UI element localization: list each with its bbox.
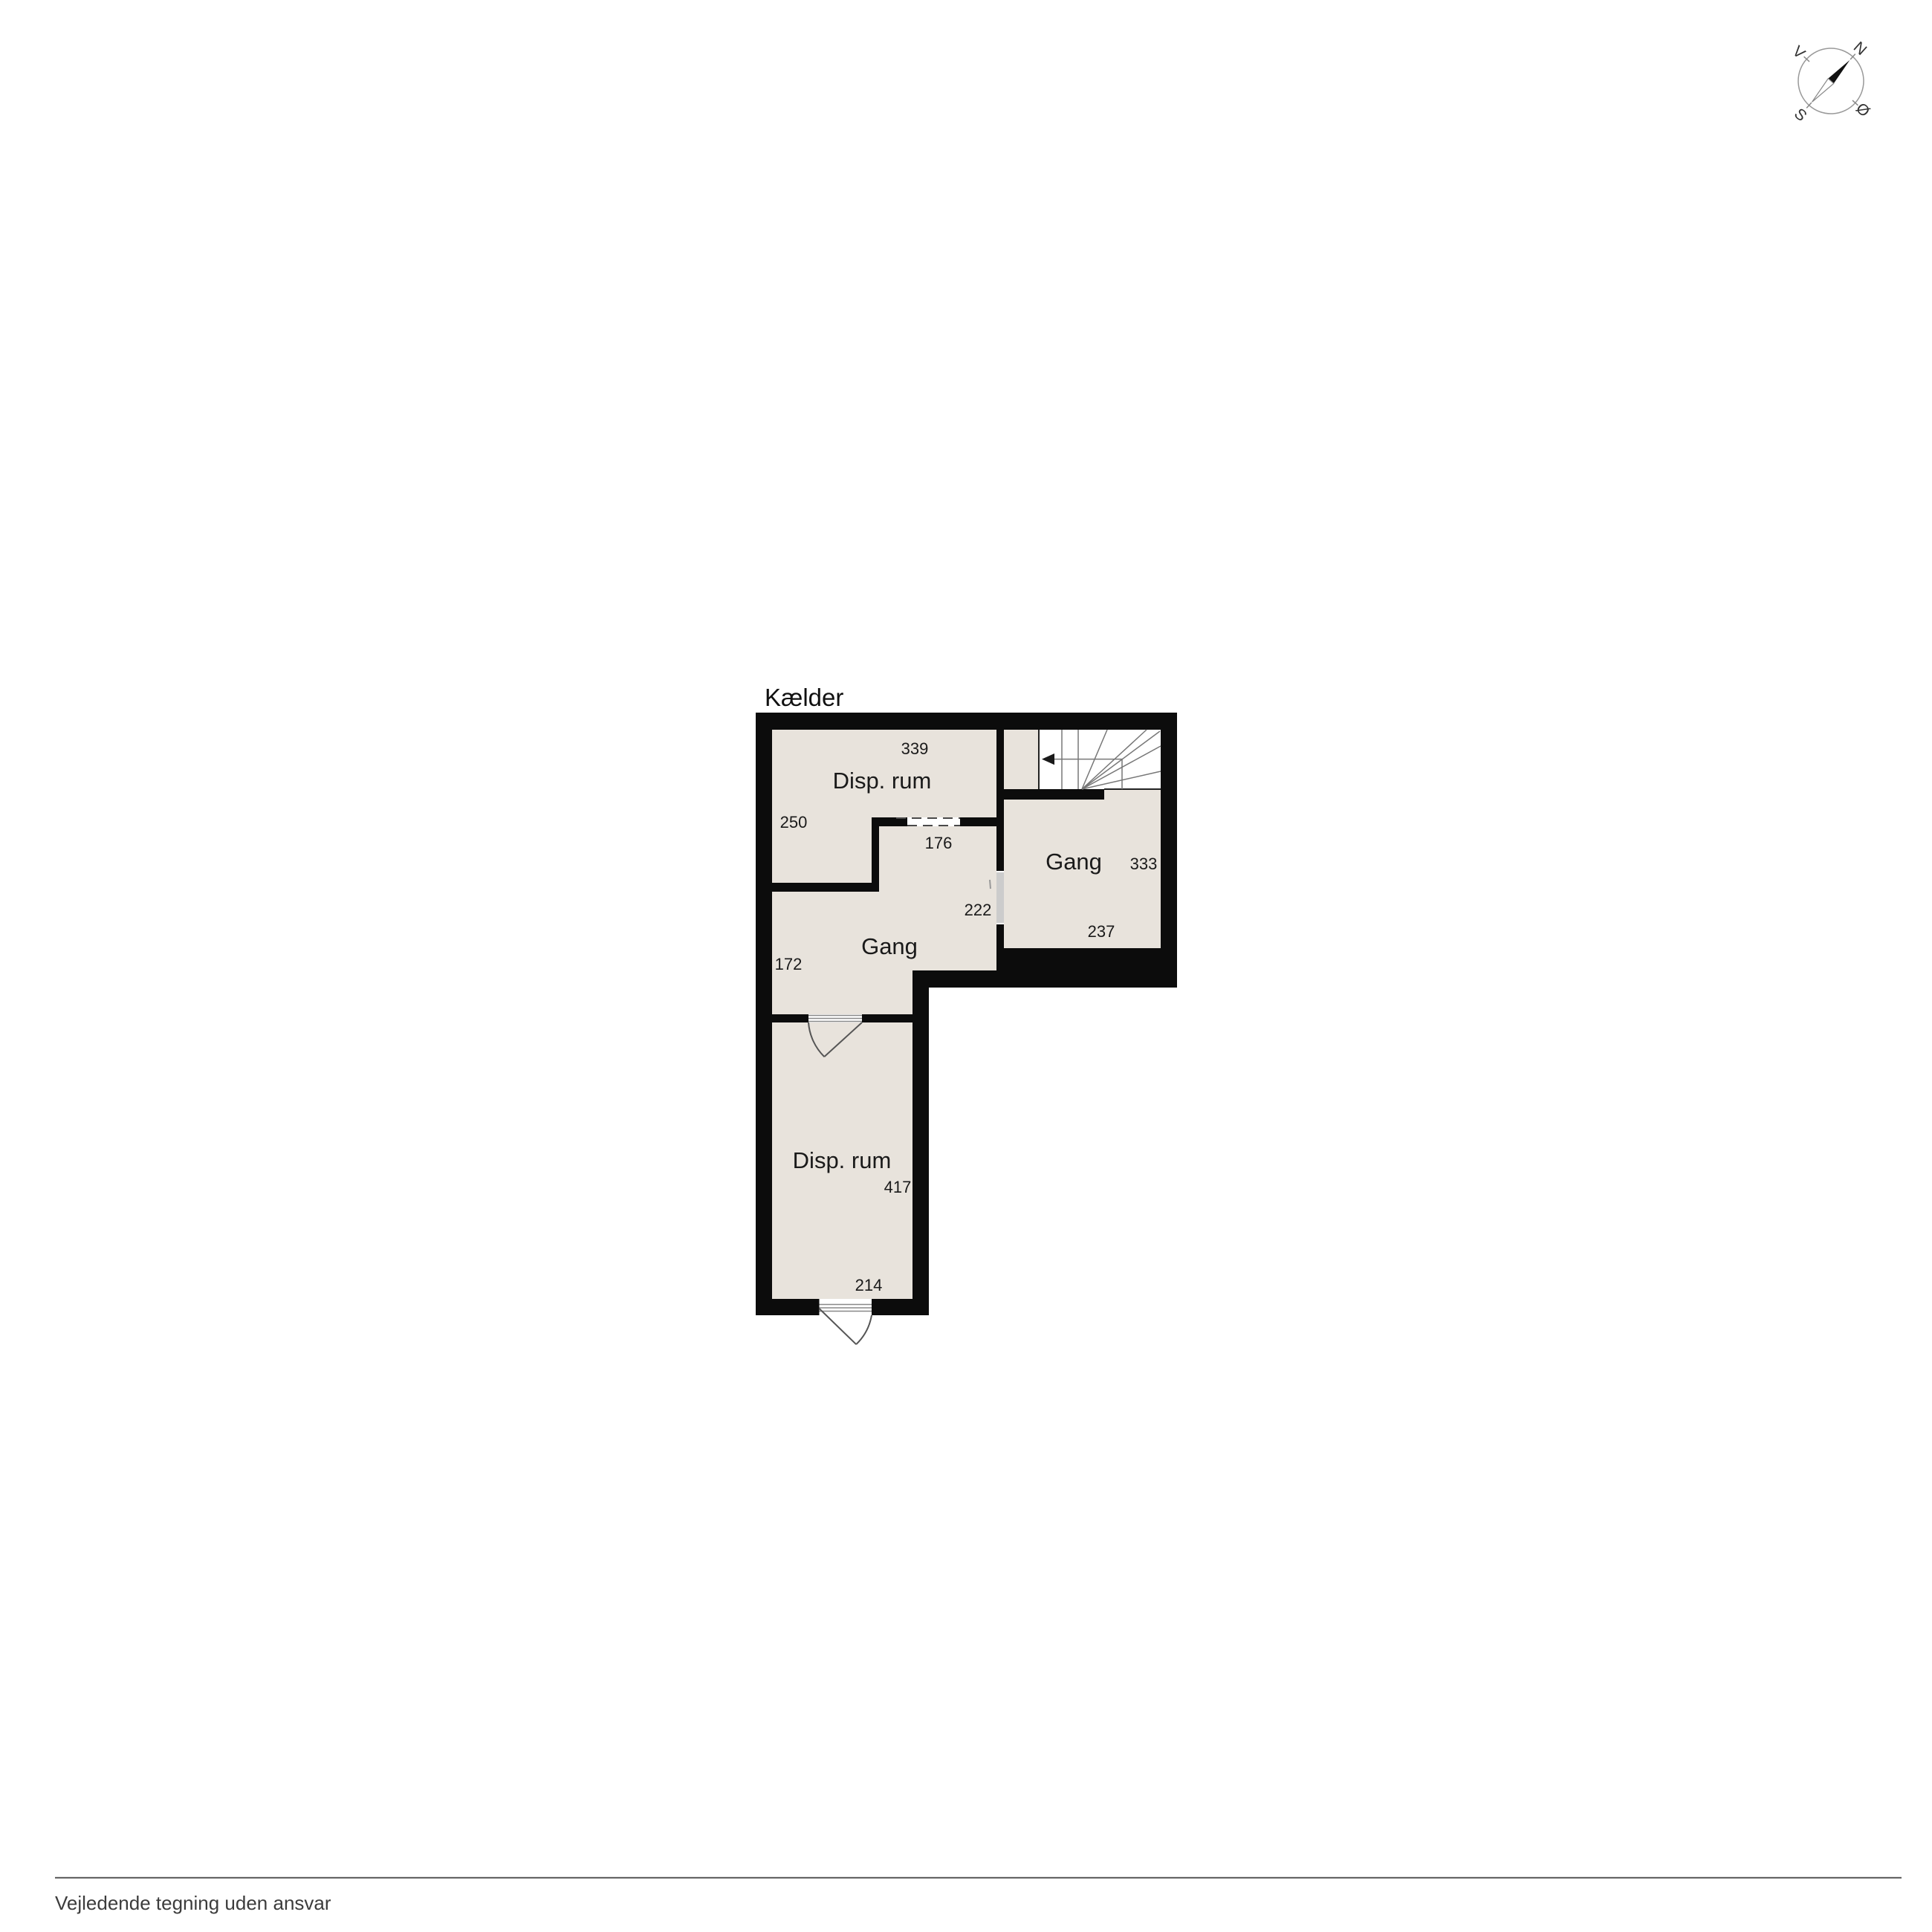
svg-text:172: 172: [775, 955, 803, 973]
svg-text:Gang: Gang: [861, 933, 918, 959]
svg-text:333: 333: [1130, 855, 1158, 873]
svg-text:250: 250: [780, 813, 808, 832]
svg-text:Disp. rum: Disp. rum: [793, 1147, 892, 1173]
svg-text:417: 417: [884, 1178, 912, 1196]
svg-text:176: 176: [925, 834, 953, 852]
svg-text:Vejledende tegning uden ansvar: Vejledende tegning uden ansvar: [55, 1892, 331, 1914]
svg-text:214: 214: [855, 1276, 883, 1294]
svg-text:Gang: Gang: [1046, 849, 1102, 875]
svg-text:222: 222: [965, 901, 992, 919]
svg-text:Disp. rum: Disp. rum: [833, 768, 932, 794]
svg-text:339: 339: [901, 739, 929, 758]
svg-text:Kælder: Kælder: [765, 684, 843, 711]
svg-text:237: 237: [1088, 922, 1115, 941]
